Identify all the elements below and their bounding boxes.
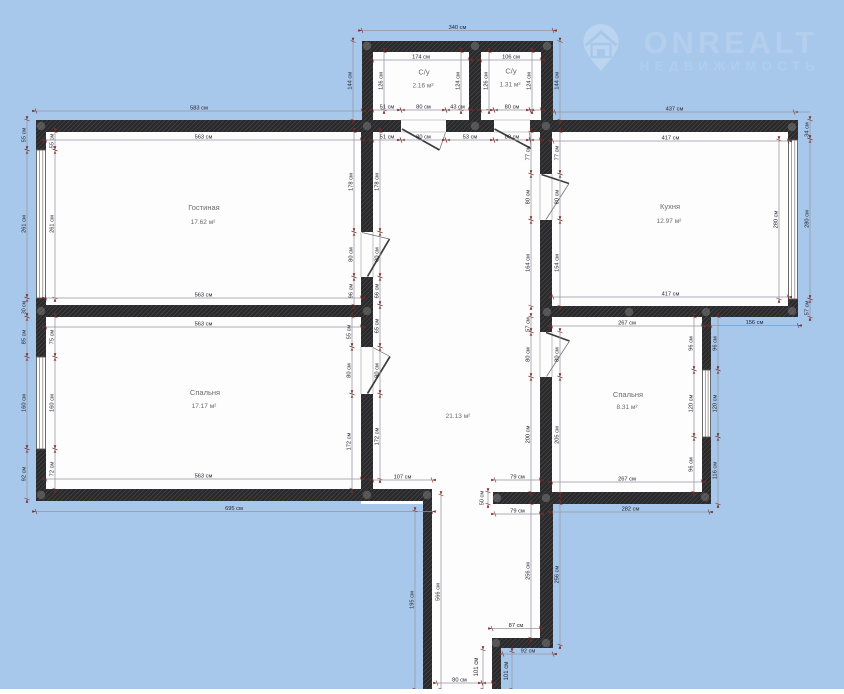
svg-text:124 см: 124 см	[455, 72, 461, 90]
svg-text:124 см: 124 см	[526, 72, 532, 90]
svg-text:267 см: 267 см	[618, 320, 636, 326]
svg-text:72 см: 72 см	[49, 462, 55, 477]
svg-text:120 см: 120 см	[688, 395, 694, 413]
svg-text:НЕДВИЖИМОСТЬ: НЕДВИЖИМОСТЬ	[640, 59, 820, 74]
svg-text:126 см: 126 см	[378, 72, 384, 90]
svg-text:Спальня: Спальня	[613, 390, 643, 399]
svg-text:563 см: 563 см	[195, 134, 213, 140]
svg-text:80 см: 80 см	[452, 677, 467, 683]
svg-text:21.13 м²: 21.13 м²	[446, 413, 472, 420]
svg-text:172 см: 172 см	[374, 428, 380, 446]
svg-text:57 см: 57 см	[804, 301, 810, 316]
svg-text:55 см: 55 см	[346, 325, 352, 340]
svg-text:92 см: 92 см	[521, 648, 536, 654]
svg-text:154 см: 154 см	[554, 254, 560, 272]
svg-text:80 см: 80 см	[505, 134, 520, 140]
svg-text:55 см: 55 см	[21, 128, 27, 143]
svg-text:583 см: 583 см	[190, 105, 208, 111]
svg-text:79 см: 79 см	[510, 474, 525, 480]
svg-text:80 см: 80 см	[348, 247, 354, 262]
svg-text:178 см: 178 см	[374, 173, 380, 191]
svg-text:156 см: 156 см	[746, 320, 764, 326]
svg-text:160 см: 160 см	[21, 394, 27, 412]
svg-text:164 см: 164 см	[525, 254, 531, 272]
svg-text:43 см: 43 см	[450, 104, 465, 110]
svg-text:80 см: 80 см	[554, 347, 560, 362]
svg-text:563 см: 563 см	[195, 473, 213, 479]
svg-text:66 см: 66 см	[374, 284, 380, 299]
svg-text:563 см: 563 см	[195, 321, 213, 327]
svg-text:80 см: 80 см	[416, 134, 431, 140]
svg-text:256 см: 256 см	[525, 562, 531, 580]
svg-text:200 см: 200 см	[525, 426, 531, 444]
svg-text:96 см: 96 см	[688, 336, 694, 351]
svg-text:340 см: 340 см	[449, 25, 467, 31]
svg-text:120 см: 120 см	[712, 395, 718, 413]
svg-text:80 см: 80 см	[525, 347, 531, 362]
svg-text:96 см: 96 см	[688, 457, 694, 472]
svg-text:8.31 м²: 8.31 м²	[616, 404, 638, 411]
svg-text:80 см: 80 см	[525, 190, 531, 205]
svg-text:92 см: 92 см	[21, 467, 27, 482]
svg-text:174 см: 174 см	[412, 54, 430, 60]
svg-text:12.97 м²: 12.97 м²	[657, 218, 683, 225]
svg-text:55 см: 55 см	[49, 134, 55, 149]
svg-text:566 см: 566 см	[435, 583, 441, 601]
svg-text:17.62 м²: 17.62 м²	[191, 219, 217, 226]
svg-text:256 см: 256 см	[554, 566, 560, 584]
svg-text:417 см: 417 см	[662, 135, 680, 141]
svg-text:437 см: 437 см	[666, 106, 684, 112]
svg-text:80 см: 80 см	[505, 104, 520, 110]
svg-text:51 см: 51 см	[380, 104, 395, 110]
svg-text:261 см: 261 см	[21, 215, 27, 233]
svg-text:80 см: 80 см	[374, 247, 380, 262]
svg-text:75 см: 75 см	[49, 330, 55, 345]
svg-text:695 см: 695 см	[225, 506, 243, 512]
svg-text:144 см: 144 см	[554, 72, 560, 90]
svg-text:160 см: 160 см	[49, 394, 55, 412]
svg-text:79 см: 79 см	[510, 508, 525, 514]
svg-text:101 см: 101 см	[504, 662, 510, 681]
svg-text:Кухня: Кухня	[660, 202, 680, 211]
svg-text:85 см: 85 см	[21, 330, 27, 345]
svg-text:126 см: 126 см	[483, 72, 489, 90]
svg-text:17.17 м²: 17.17 м²	[192, 403, 218, 410]
svg-text:С/у: С/у	[505, 67, 517, 76]
svg-text:80 см: 80 см	[416, 104, 431, 110]
svg-text:280 см: 280 см	[804, 210, 810, 228]
svg-text:80 см: 80 см	[554, 190, 560, 205]
svg-text:195 см: 195 см	[409, 591, 415, 609]
svg-text:87 см: 87 см	[509, 623, 524, 629]
svg-text:51 см: 51 см	[380, 134, 395, 140]
svg-text:205 см: 205 см	[554, 426, 560, 444]
svg-text:2.16 м²: 2.16 м²	[412, 83, 434, 90]
svg-text:77 см: 77 см	[525, 146, 531, 161]
svg-text:Спальня: Спальня	[190, 388, 220, 397]
svg-text:50 см: 50 см	[480, 491, 486, 506]
svg-text:107 см: 107 см	[394, 474, 412, 480]
svg-text:96 см: 96 см	[348, 284, 354, 299]
svg-text:80 см: 80 см	[374, 363, 380, 378]
svg-text:65 см: 65 см	[374, 319, 380, 334]
svg-text:80 см: 80 см	[346, 363, 352, 378]
svg-text:ONREALT: ONREALT	[644, 26, 819, 60]
svg-text:77 см: 77 см	[554, 146, 560, 161]
svg-text:280 см: 280 см	[773, 211, 779, 229]
svg-text:116 см: 116 см	[712, 462, 718, 479]
svg-text:101 см: 101 см	[474, 658, 480, 677]
svg-text:282 см: 282 см	[622, 506, 640, 512]
svg-text:267 см: 267 см	[618, 476, 636, 482]
svg-text:34 см: 34 см	[804, 122, 810, 137]
svg-text:106 см: 106 см	[502, 54, 520, 60]
svg-text:С/у: С/у	[418, 68, 430, 77]
svg-text:261 см: 261 см	[49, 215, 55, 233]
svg-text:178 см: 178 см	[348, 173, 354, 191]
svg-text:1.31 м²: 1.31 м²	[499, 82, 521, 89]
svg-text:Гостиная: Гостиная	[188, 203, 219, 212]
svg-text:563 см: 563 см	[195, 292, 213, 298]
svg-text:172 см: 172 см	[346, 433, 352, 451]
svg-text:96 см: 96 см	[712, 336, 718, 351]
svg-text:144 см: 144 см	[347, 72, 353, 90]
svg-text:53 см: 53 см	[463, 134, 478, 140]
svg-text:30 см: 30 см	[21, 300, 27, 313]
svg-text:417 см: 417 см	[662, 291, 680, 297]
